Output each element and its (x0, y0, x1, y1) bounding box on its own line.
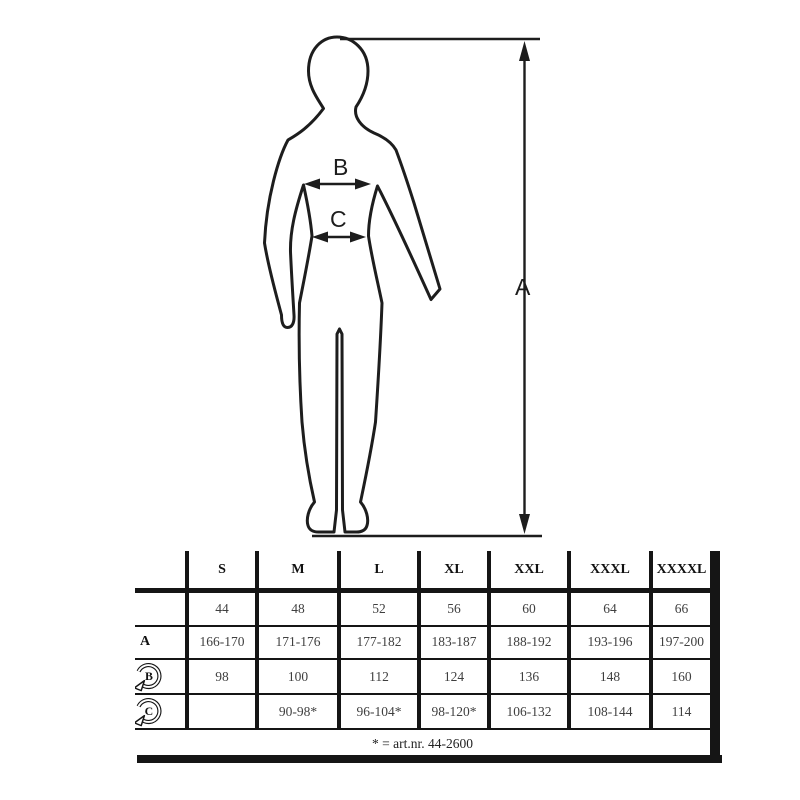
size-cell: 64 (569, 591, 651, 626)
row-label: C (135, 694, 187, 729)
size-cell: 148 (569, 659, 651, 694)
size-cell: 60 (489, 591, 569, 626)
size-column-header: XL (419, 551, 489, 591)
table-frame-right-bar (710, 551, 720, 763)
size-cell: 160 (651, 659, 710, 694)
size-number-row: 44 48 52 56 60 64 66 (135, 591, 710, 626)
size-cell: 90-98* (257, 694, 339, 729)
size-header-row: S M L XL XXL XXXL XXXXL (135, 551, 710, 591)
size-cell: 136 (489, 659, 569, 694)
size-cell: 100 (257, 659, 339, 694)
size-cell: 114 (651, 694, 710, 729)
table-frame-bottom-bar (137, 755, 722, 763)
size-column-header: S (187, 551, 257, 591)
circular-arrow-icon: B (135, 660, 164, 693)
footnote-row: * = art.nr. 44-2600 (135, 729, 710, 758)
size-column-header: M (257, 551, 339, 591)
size-cell: 193-196 (569, 626, 651, 660)
size-cell: 52 (339, 591, 419, 626)
row-label (135, 591, 187, 626)
size-cell: 108-144 (569, 694, 651, 729)
size-cell: 98-120* (419, 694, 489, 729)
height-label: A (515, 274, 531, 300)
size-table: S M L XL XXL XXXL XXXXL 44 48 52 56 60 (135, 551, 710, 758)
size-column-header: XXXXL (651, 551, 710, 591)
size-chart-page: A B C S M L (0, 0, 800, 800)
size-cell: 106-132 (489, 694, 569, 729)
size-cell: 56 (419, 591, 489, 626)
size-cell: 66 (651, 591, 710, 626)
size-cell: 44 (187, 591, 257, 626)
circular-arrow-icon: C (135, 695, 164, 728)
size-column-header: L (339, 551, 419, 591)
size-cell: 197-200 (651, 626, 710, 660)
size-column-header: XXXL (569, 551, 651, 591)
size-table-container: S M L XL XXL XXXL XXXXL 44 48 52 56 60 (135, 551, 710, 758)
height-row: A 166-170 171-176 177-182 183-187 188-19… (135, 626, 710, 660)
size-cell: 183-187 (419, 626, 489, 660)
footnote: * = art.nr. 44-2600 (135, 729, 710, 758)
size-cell: 171-176 (257, 626, 339, 660)
size-cell: 98 (187, 659, 257, 694)
body-silhouette (265, 37, 441, 532)
size-cell: 188-192 (489, 626, 569, 660)
size-column-header: XXL (489, 551, 569, 591)
measurement-figure: A B C (0, 0, 800, 545)
size-cell: 96-104* (339, 694, 419, 729)
row-label: A (135, 626, 187, 660)
chest-row: B 98 100 112 124 136 148 160 (135, 659, 710, 694)
size-cell: 124 (419, 659, 489, 694)
size-cell (187, 694, 257, 729)
svg-text:C: C (145, 704, 154, 718)
size-cell: 112 (339, 659, 419, 694)
waist-label: C (330, 206, 347, 232)
size-cell: 166-170 (187, 626, 257, 660)
chest-label: B (333, 154, 348, 180)
svg-text:B: B (145, 669, 153, 683)
row-label: B (135, 659, 187, 694)
size-cell: 48 (257, 591, 339, 626)
corner-cell (135, 551, 187, 591)
waist-row: C 90-98* 96-104* 98-120* 106-132 108-144… (135, 694, 710, 729)
size-cell: 177-182 (339, 626, 419, 660)
